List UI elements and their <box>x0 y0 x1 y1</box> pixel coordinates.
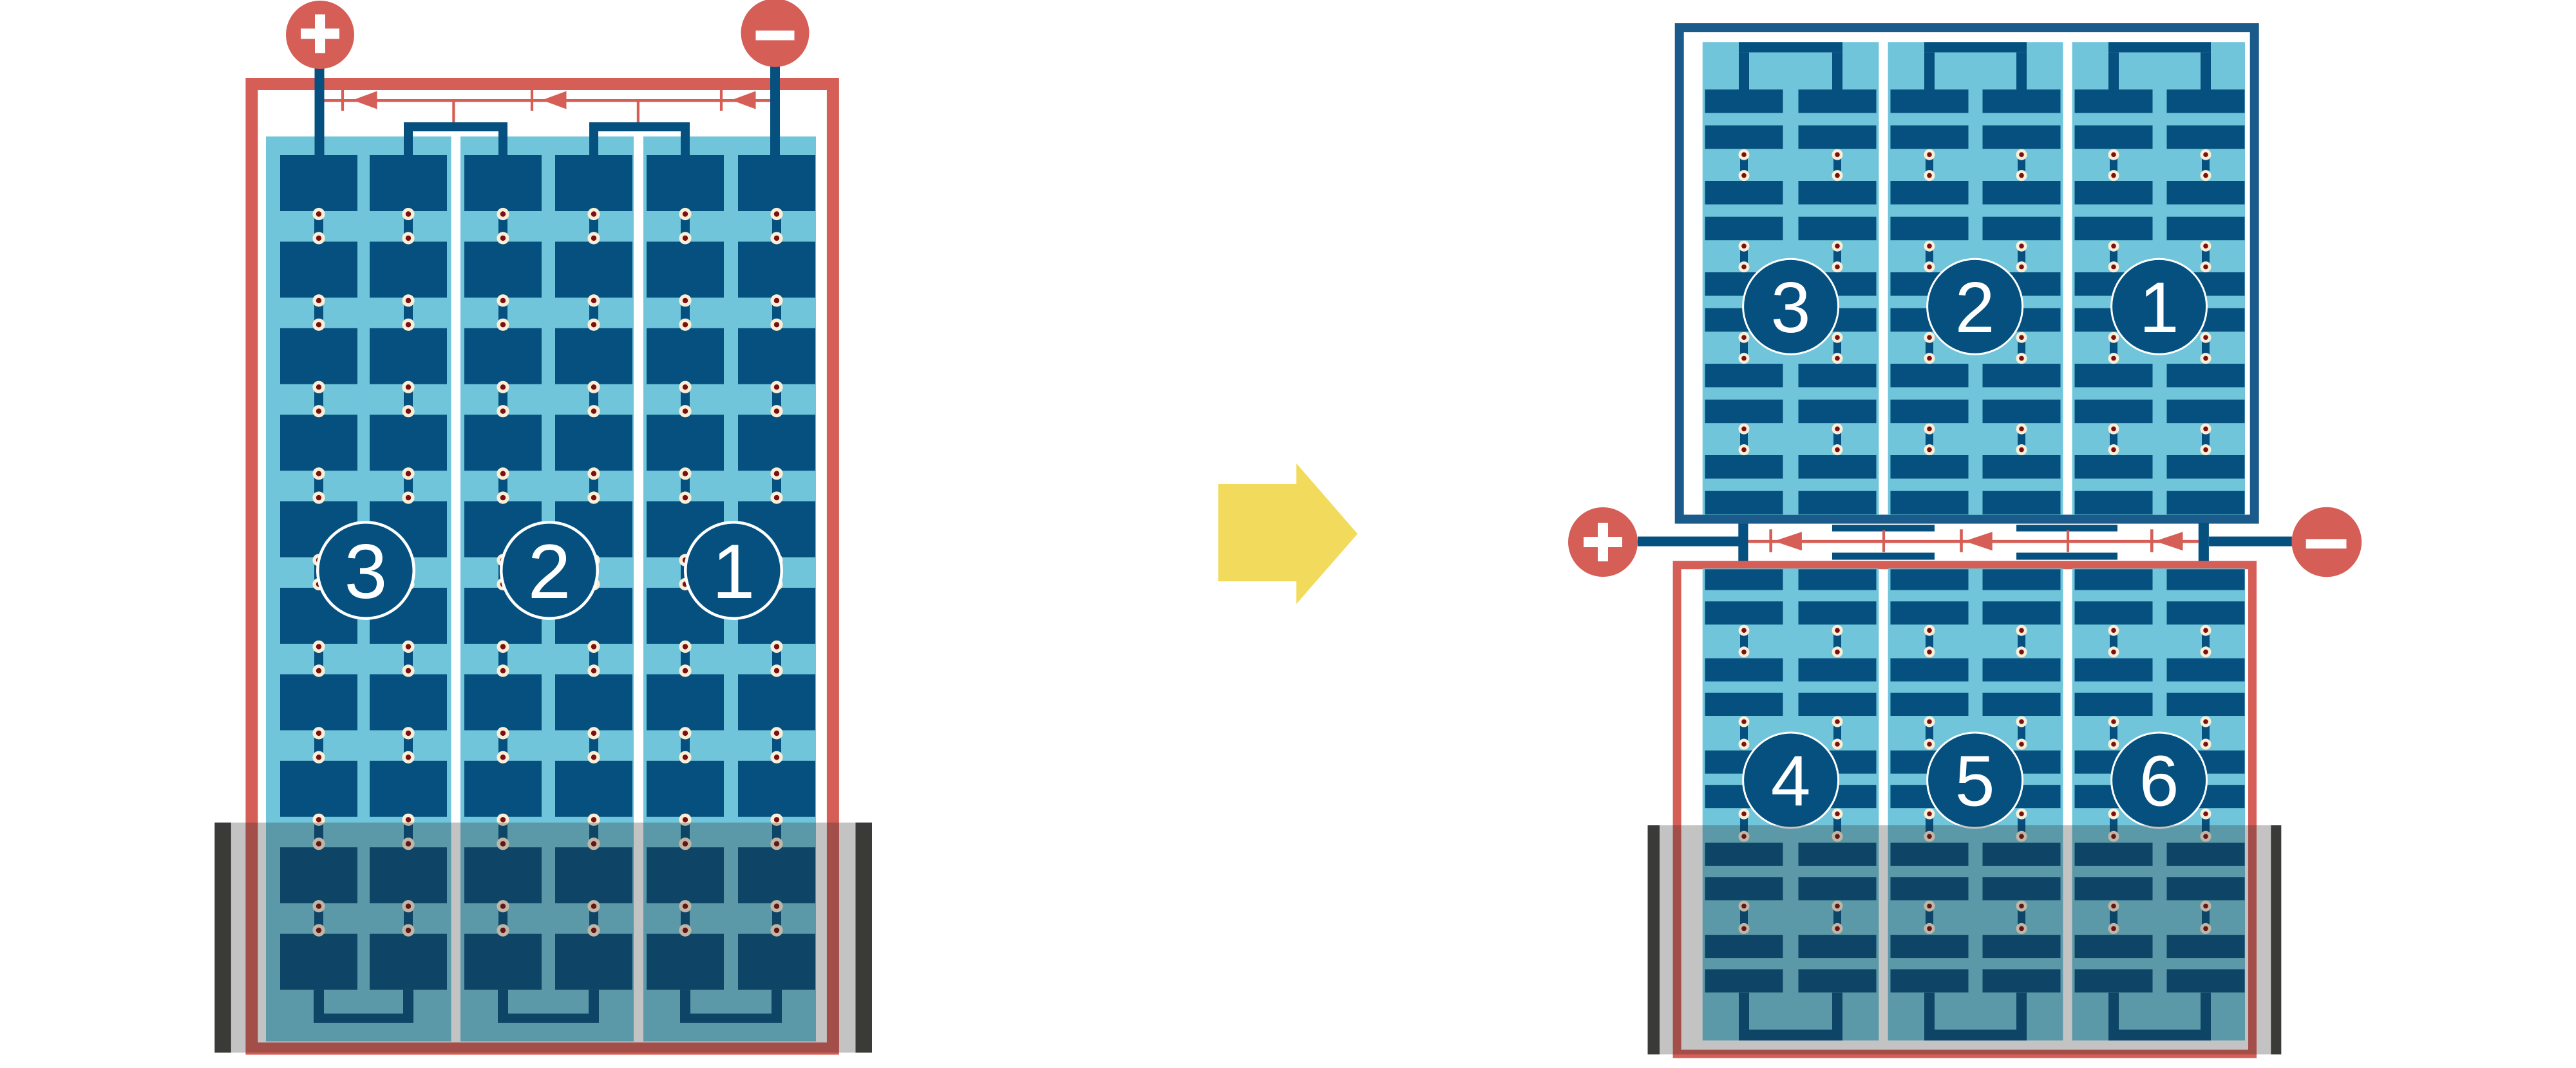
svg-text:5: 5 <box>1955 742 1995 821</box>
svg-text:6: 6 <box>2139 742 2179 821</box>
svg-text:2: 2 <box>1955 268 1995 348</box>
svg-text:1: 1 <box>712 529 755 615</box>
svg-text:3: 3 <box>1771 268 1811 348</box>
svg-text:1: 1 <box>2139 268 2179 348</box>
svg-text:4: 4 <box>1771 742 1811 821</box>
svg-text:3: 3 <box>345 529 388 615</box>
svg-text:2: 2 <box>528 529 571 615</box>
